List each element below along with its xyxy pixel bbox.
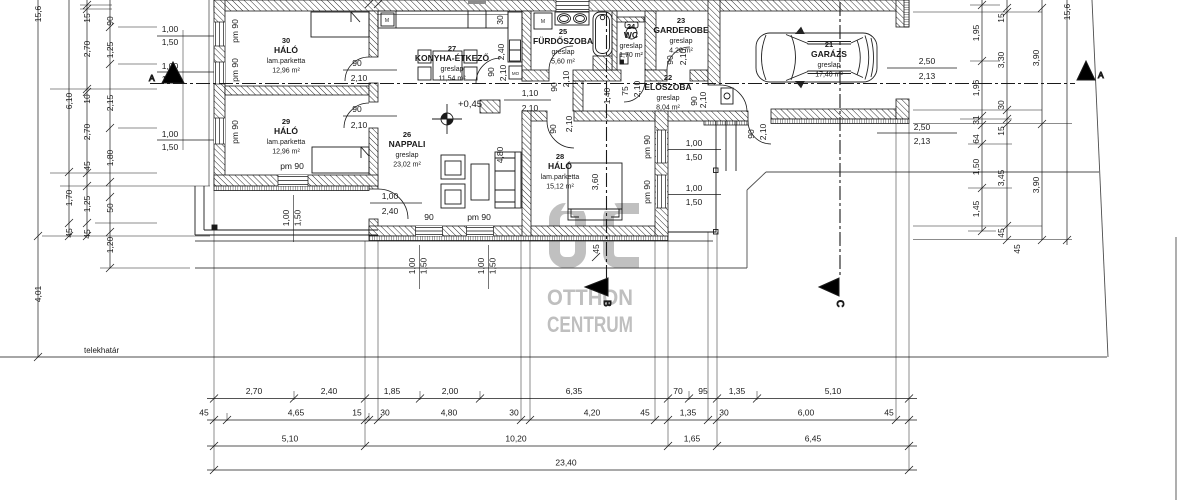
svg-text:2,40: 2,40	[382, 206, 399, 216]
svg-text:90: 90	[746, 129, 756, 139]
svg-text:1,80: 1,80	[105, 149, 115, 166]
svg-text:70: 70	[673, 386, 683, 396]
svg-text:HÁLÓ: HÁLÓ	[548, 160, 572, 171]
svg-text:greslap: greslap	[441, 66, 464, 73]
svg-text:6,10: 6,10	[64, 92, 74, 109]
svg-text:lam.parketta: lam.parketta	[267, 58, 306, 65]
svg-text:1,50: 1,50	[419, 257, 429, 274]
svg-text:23,40: 23,40	[555, 458, 577, 468]
svg-text:2,40: 2,40	[321, 386, 338, 396]
svg-text:M: M	[541, 19, 545, 25]
svg-text:90: 90	[665, 55, 675, 65]
svg-text:4,20: 4,20	[584, 408, 601, 418]
svg-text:15,6: 15,6	[1062, 3, 1072, 20]
svg-text:28: 28	[556, 152, 564, 161]
svg-text:17,40 m²: 17,40 m²	[815, 72, 843, 79]
svg-text:pm 90: pm 90	[230, 19, 240, 43]
svg-text:greslap: greslap	[818, 62, 841, 69]
svg-text:ELŐSZOBA: ELŐSZOBA	[644, 81, 691, 92]
svg-text:90: 90	[352, 104, 362, 114]
svg-text:MO: MO	[512, 71, 520, 76]
svg-text:12,96 m²: 12,96 m²	[272, 68, 300, 75]
svg-text:1,50: 1,50	[971, 158, 981, 175]
svg-text:30: 30	[719, 408, 729, 418]
svg-text:+0,45: +0,45	[458, 99, 482, 110]
svg-text:6,35: 6,35	[566, 386, 583, 396]
svg-text:50: 50	[105, 203, 115, 213]
svg-text:pm 90: pm 90	[230, 58, 240, 82]
svg-text:3,30: 3,30	[996, 51, 1006, 68]
svg-text:1,00: 1,00	[281, 209, 291, 226]
svg-text:29: 29	[282, 117, 290, 126]
svg-text:FÜRDŐSZOBA: FÜRDŐSZOBA	[533, 35, 593, 46]
svg-text:23: 23	[677, 16, 685, 25]
svg-text:15: 15	[996, 126, 1006, 136]
svg-text:90: 90	[548, 124, 558, 134]
svg-text:2,00: 2,00	[442, 386, 459, 396]
svg-text:2,10: 2,10	[561, 70, 571, 87]
svg-text:A: A	[149, 73, 155, 83]
svg-text:2,50: 2,50	[919, 56, 936, 66]
svg-text:26: 26	[403, 130, 411, 139]
svg-text:pm 90: pm 90	[467, 212, 491, 222]
svg-text:30: 30	[495, 15, 505, 25]
svg-text:15,12 m²: 15,12 m²	[546, 184, 574, 191]
svg-text:1,70: 1,70	[64, 189, 74, 206]
svg-text:lam.parketta: lam.parketta	[541, 174, 580, 181]
svg-text:2,10: 2,10	[351, 120, 368, 130]
svg-text:45: 45	[199, 408, 209, 418]
svg-text:1,65: 1,65	[684, 434, 701, 444]
svg-text:23,02 m²: 23,02 m²	[393, 162, 421, 169]
svg-text:2,40: 2,40	[496, 43, 506, 60]
svg-text:45: 45	[64, 228, 74, 238]
svg-text:15: 15	[352, 408, 362, 418]
svg-text:HÁLÓ: HÁLÓ	[274, 44, 298, 55]
svg-text:45: 45	[884, 408, 894, 418]
svg-text:90: 90	[352, 58, 362, 68]
svg-text:2,13: 2,13	[919, 71, 936, 81]
svg-text:1,50: 1,50	[293, 209, 303, 226]
svg-text:4,80: 4,80	[495, 146, 505, 163]
svg-text:10,20: 10,20	[505, 434, 527, 444]
svg-text:greslap: greslap	[396, 152, 419, 159]
svg-text:1,00: 1,00	[686, 138, 703, 148]
svg-text:telekhatár: telekhatár	[84, 346, 119, 355]
svg-text:3,45: 3,45	[996, 169, 1006, 186]
svg-text:B: B	[601, 300, 612, 307]
svg-text:greslap: greslap	[670, 38, 693, 45]
svg-text:45: 45	[591, 244, 601, 254]
svg-text:8,04 m²: 8,04 m²	[656, 105, 680, 112]
svg-text:10: 10	[82, 94, 92, 104]
svg-text:1,50: 1,50	[162, 37, 179, 47]
svg-text:1,00: 1,00	[382, 191, 399, 201]
svg-text:45: 45	[996, 228, 1006, 238]
svg-text:1,20: 1,20	[105, 236, 115, 253]
svg-text:90: 90	[105, 16, 115, 26]
svg-text:2,10: 2,10	[678, 48, 688, 65]
svg-text:4,01: 4,01	[33, 285, 43, 302]
svg-text:2,15: 2,15	[105, 94, 115, 111]
svg-text:30: 30	[509, 408, 519, 418]
svg-text:3,90: 3,90	[1031, 49, 1041, 66]
svg-text:2,10: 2,10	[564, 115, 574, 132]
svg-text:1,25: 1,25	[82, 195, 92, 212]
svg-text:15: 15	[996, 13, 1006, 23]
svg-text:1,35: 1,35	[680, 408, 697, 418]
svg-text:greslap: greslap	[657, 95, 680, 102]
svg-text:HÁLÓ: HÁLÓ	[274, 125, 298, 136]
svg-text:1,00: 1,00	[476, 257, 486, 274]
svg-text:45: 45	[640, 408, 650, 418]
svg-text:2,10: 2,10	[351, 73, 368, 83]
svg-text:1,00: 1,00	[162, 129, 179, 139]
svg-text:5,10: 5,10	[282, 434, 299, 444]
svg-text:45: 45	[82, 229, 92, 239]
svg-text:75: 75	[620, 86, 630, 96]
svg-text:1,50: 1,50	[162, 142, 179, 152]
svg-text:KONYHA-ÉTKEZŐ: KONYHA-ÉTKEZŐ	[415, 52, 490, 63]
svg-text:5,10: 5,10	[825, 386, 842, 396]
svg-text:A: A	[1098, 70, 1104, 80]
svg-text:30: 30	[996, 100, 1006, 110]
svg-text:30: 30	[282, 36, 290, 45]
svg-text:1,50: 1,50	[488, 257, 498, 274]
svg-text:45: 45	[1012, 244, 1022, 254]
svg-text:1,70 m²: 1,70 m²	[619, 52, 643, 59]
svg-text:2,70: 2,70	[82, 123, 92, 140]
svg-text:M: M	[385, 18, 389, 24]
svg-text:6,00: 6,00	[798, 408, 815, 418]
svg-text:GARÁZS: GARÁZS	[811, 49, 847, 59]
svg-text:C: C	[834, 300, 845, 307]
svg-text:NAPPALI: NAPPALI	[389, 139, 426, 149]
svg-text:CENTRUM: CENTRUM	[547, 312, 633, 337]
svg-text:greslap: greslap	[620, 43, 643, 50]
svg-text:1,45: 1,45	[971, 200, 981, 217]
svg-text:2,70: 2,70	[246, 386, 263, 396]
svg-text:22: 22	[664, 73, 672, 82]
svg-text:pm 90: pm 90	[642, 180, 652, 204]
svg-text:21: 21	[825, 40, 833, 49]
svg-text:3,60: 3,60	[590, 173, 600, 190]
svg-text:4,80: 4,80	[441, 408, 458, 418]
svg-text:90: 90	[424, 212, 434, 222]
svg-text:1,95: 1,95	[971, 24, 981, 41]
svg-text:12,96 m²: 12,96 m²	[272, 149, 300, 156]
svg-text:5,60 m²: 5,60 m²	[551, 59, 575, 66]
svg-text:1,25: 1,25	[105, 41, 115, 58]
svg-text:6,45: 6,45	[805, 434, 822, 444]
svg-text:25: 25	[559, 27, 567, 36]
svg-text:2,10: 2,10	[698, 91, 708, 108]
svg-text:2,10: 2,10	[498, 64, 508, 81]
svg-text:2,10: 2,10	[522, 103, 539, 113]
svg-text:1,10: 1,10	[522, 88, 539, 98]
svg-text:2,13: 2,13	[914, 136, 931, 146]
svg-text:2,70: 2,70	[82, 40, 92, 57]
svg-text:GARDEROBE: GARDEROBE	[653, 25, 709, 35]
svg-text:45: 45	[82, 161, 92, 171]
svg-text:30: 30	[380, 408, 390, 418]
svg-text:2,10: 2,10	[758, 123, 768, 140]
svg-text:1,85: 1,85	[384, 386, 401, 396]
svg-text:4,65: 4,65	[288, 408, 305, 418]
svg-text:15: 15	[82, 13, 92, 23]
svg-text:1,35: 1,35	[729, 386, 746, 396]
svg-text:lam.parketta: lam.parketta	[267, 139, 306, 146]
svg-text:1,00: 1,00	[686, 183, 703, 193]
svg-text:64: 64	[971, 134, 981, 144]
svg-text:1,00: 1,00	[162, 24, 179, 34]
svg-text:95: 95	[698, 386, 708, 396]
svg-text:3,90: 3,90	[1031, 176, 1041, 193]
svg-text:WC: WC	[624, 30, 638, 40]
svg-text:pm 90: pm 90	[230, 120, 240, 144]
svg-text:11,54 m²: 11,54 m²	[438, 76, 466, 83]
svg-text:1,00: 1,00	[407, 257, 417, 274]
svg-text:15,6: 15,6	[33, 5, 43, 22]
svg-text:1,50: 1,50	[686, 152, 703, 162]
svg-text:27: 27	[448, 44, 456, 53]
svg-text:2,50: 2,50	[914, 122, 931, 132]
svg-text:pm 90: pm 90	[642, 135, 652, 159]
svg-text:1,96: 1,96	[971, 79, 981, 96]
svg-text:pm 90: pm 90	[280, 161, 304, 171]
svg-text:greslap: greslap	[552, 49, 575, 56]
svg-text:1,50: 1,50	[686, 197, 703, 207]
svg-text:90: 90	[486, 67, 496, 77]
